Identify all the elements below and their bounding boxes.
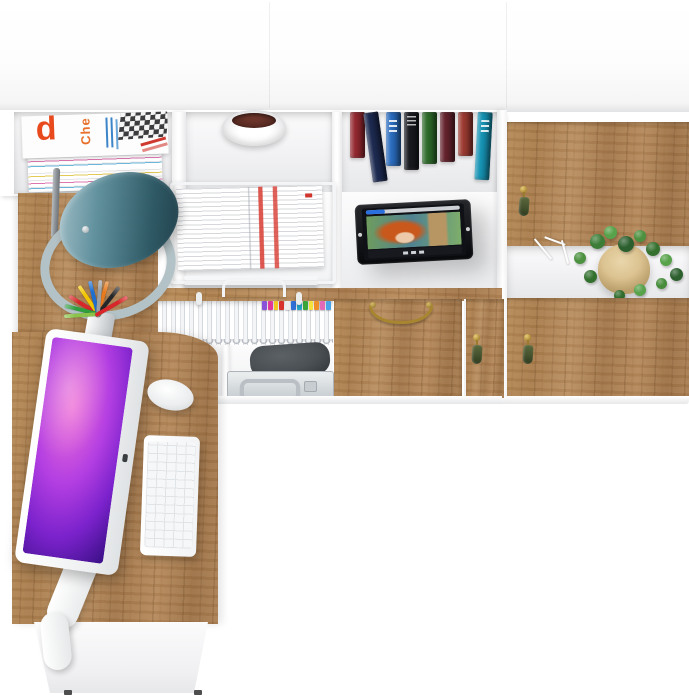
keyboard-keys [144, 441, 196, 549]
video-still [366, 212, 462, 250]
decor-bowl [222, 110, 286, 146]
tray-documents [176, 185, 324, 271]
handle-tassel [522, 345, 533, 365]
plant-leaf [634, 230, 646, 242]
plant-leaf [660, 254, 672, 266]
plant-leaf [590, 234, 605, 249]
book [474, 112, 493, 181]
keyboard [140, 435, 200, 557]
magazine-cover: d Che [21, 111, 168, 158]
magazine-blue-text [105, 118, 108, 148]
book [422, 112, 437, 164]
book [363, 111, 388, 182]
tablet [355, 199, 474, 265]
small-door-handle [470, 334, 484, 368]
handle-tassel [471, 345, 482, 365]
tablet-bezel-dot [358, 233, 362, 237]
plant-leaf [634, 284, 646, 296]
wall-unit-top-panel [0, 0, 689, 112]
desk-foot [64, 690, 72, 695]
document-red-mark [305, 193, 312, 197]
lamp-screw [82, 226, 89, 233]
bowl-contents [232, 113, 276, 128]
book [350, 112, 365, 158]
handle-screw [426, 302, 432, 308]
furniture-scene: d Che [0, 0, 689, 700]
magazine-checker-pattern [118, 111, 169, 140]
panel-seam-left [269, 2, 270, 108]
plant-leaf [670, 268, 683, 281]
paper-tray [170, 180, 334, 306]
tablet-bezel-dot [466, 227, 470, 231]
potted-plant [540, 226, 689, 306]
monitor-power-dot [122, 454, 128, 463]
plant-leaf [584, 270, 597, 283]
plant-leaf [618, 236, 634, 252]
wardrobe-upper-handle [517, 186, 531, 220]
magazine-cover-word: Che [77, 117, 93, 145]
handle-tassel [518, 197, 529, 217]
case-latch [304, 381, 317, 392]
tray-handle [222, 278, 286, 297]
tablet-screen [362, 203, 467, 260]
tray-leg [196, 292, 202, 305]
panel-seam-right [506, 2, 507, 108]
magazine-cover-letter: d [35, 111, 57, 146]
plant-leaves [540, 226, 689, 306]
plant-leaf [574, 252, 586, 264]
wardrobe-lower-handle [521, 334, 535, 368]
tray-leg [296, 292, 302, 305]
book [404, 112, 419, 170]
handle-screw [370, 302, 376, 308]
book [458, 112, 473, 156]
plant-leaf [604, 226, 617, 239]
desk-foot [194, 690, 202, 695]
plant-leaf [656, 278, 667, 289]
book [386, 112, 401, 166]
plant-leaf [646, 242, 660, 256]
wardrobe-bottom-edge [499, 396, 689, 404]
book-row [348, 112, 500, 190]
book [440, 112, 455, 162]
